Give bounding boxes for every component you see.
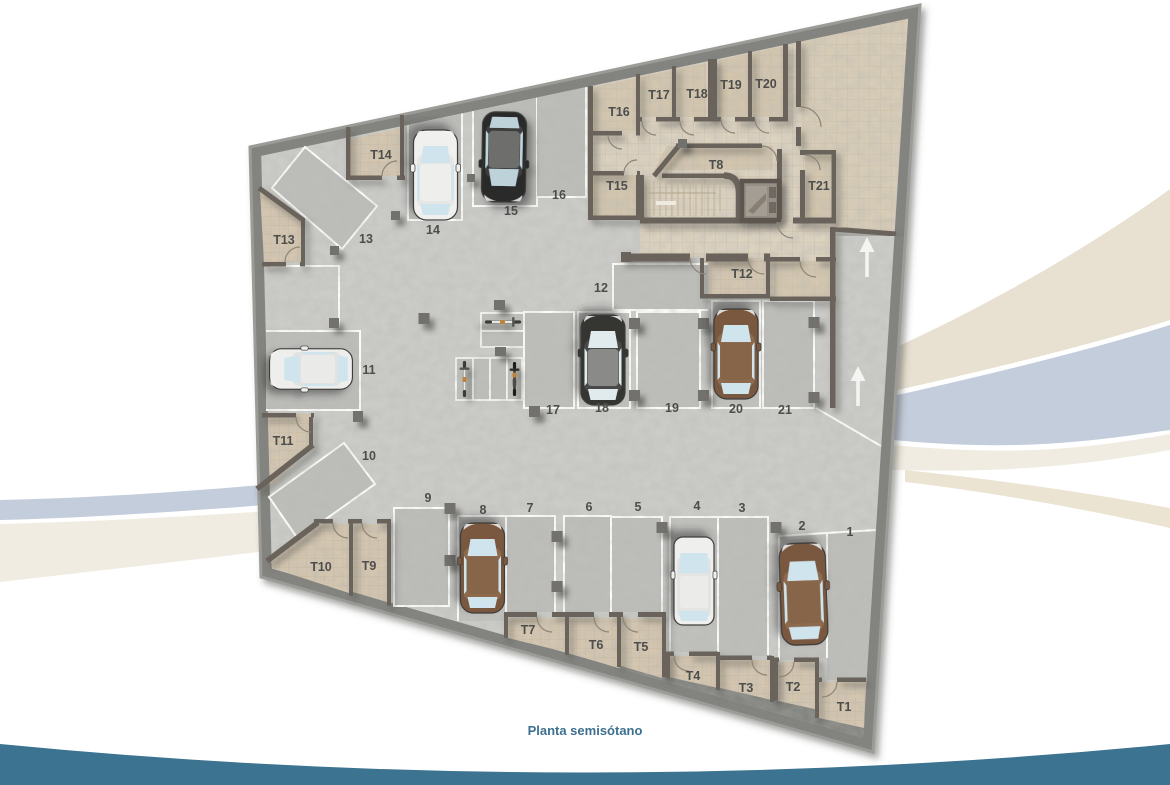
svg-text:T14: T14 [370, 148, 392, 162]
svg-text:8: 8 [480, 503, 487, 517]
svg-text:18: 18 [595, 401, 609, 415]
svg-text:T8: T8 [709, 158, 724, 172]
svg-text:10: 10 [362, 449, 376, 463]
svg-text:7: 7 [527, 501, 534, 515]
svg-text:13: 13 [359, 232, 373, 246]
svg-text:9: 9 [425, 491, 432, 505]
svg-text:Planta semisótano: Planta semisótano [528, 723, 643, 738]
svg-text:6: 6 [586, 500, 593, 514]
svg-text:15: 15 [504, 204, 518, 218]
svg-text:5: 5 [635, 500, 642, 514]
svg-text:T1: T1 [837, 700, 852, 714]
svg-text:T17: T17 [648, 88, 670, 102]
svg-text:3: 3 [739, 501, 746, 515]
svg-text:T5: T5 [634, 640, 649, 654]
svg-text:14: 14 [426, 223, 440, 237]
svg-text:20: 20 [729, 402, 743, 416]
svg-text:1: 1 [847, 525, 854, 539]
svg-text:2: 2 [799, 519, 806, 533]
svg-text:17: 17 [546, 403, 560, 417]
svg-text:T13: T13 [273, 233, 295, 247]
svg-text:21: 21 [778, 403, 792, 417]
svg-text:T21: T21 [808, 179, 830, 193]
svg-text:T18: T18 [686, 87, 708, 101]
svg-text:19: 19 [665, 401, 679, 415]
svg-text:11: 11 [362, 363, 375, 377]
svg-text:T16: T16 [608, 105, 630, 119]
svg-text:T9: T9 [362, 559, 377, 573]
svg-text:4: 4 [694, 499, 701, 513]
svg-text:16: 16 [552, 188, 566, 202]
svg-text:T12: T12 [731, 267, 753, 281]
svg-text:T20: T20 [755, 77, 777, 91]
svg-text:T2: T2 [786, 680, 801, 694]
svg-text:T11: T11 [273, 434, 294, 448]
svg-text:T19: T19 [720, 78, 742, 92]
svg-text:T4: T4 [686, 669, 701, 683]
svg-text:T10: T10 [310, 560, 332, 574]
svg-text:T15: T15 [606, 179, 628, 193]
svg-text:12: 12 [594, 281, 608, 295]
svg-text:T6: T6 [589, 638, 604, 652]
svg-text:T7: T7 [521, 623, 536, 637]
svg-text:T3: T3 [739, 681, 754, 695]
